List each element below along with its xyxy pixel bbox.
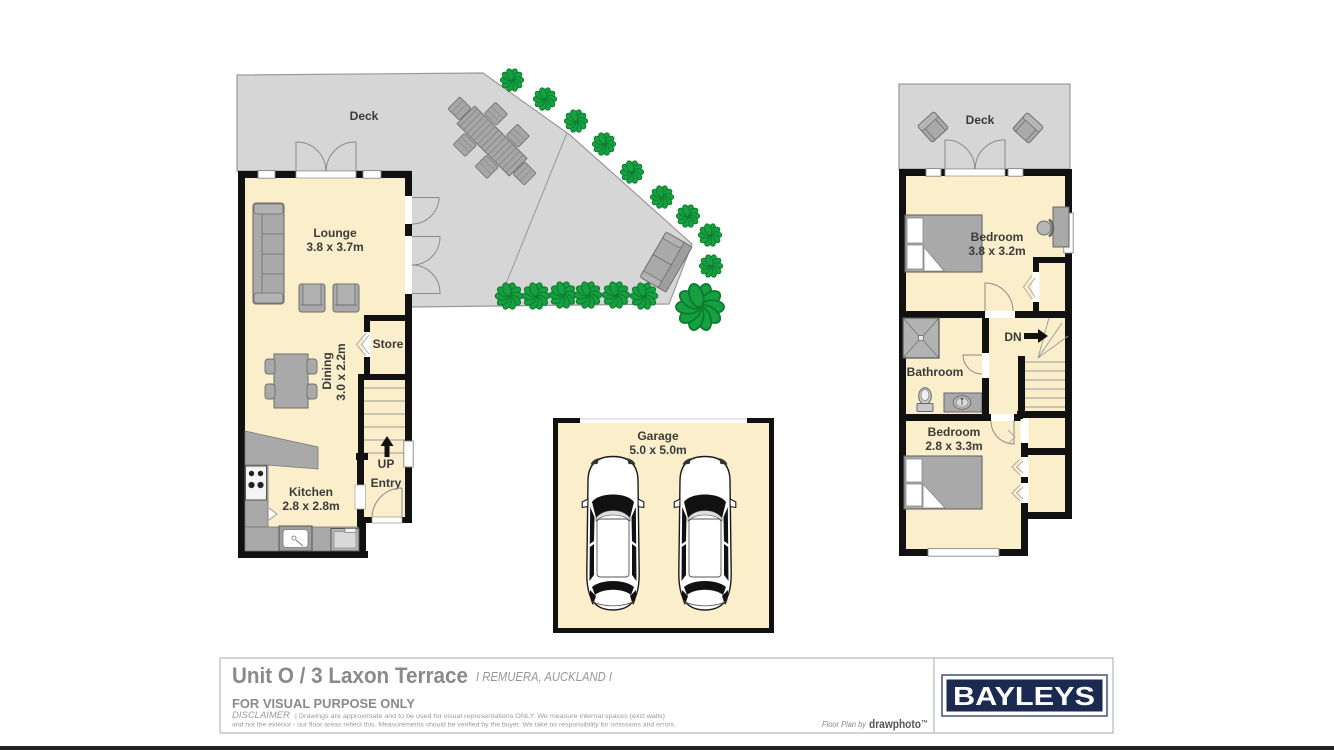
svg-text:DN: DN	[1004, 330, 1021, 344]
svg-text:3.8 x 3.2m: 3.8 x 3.2m	[968, 244, 1025, 258]
svg-text:5.0 x 5.0m: 5.0 x 5.0m	[629, 443, 686, 457]
svg-text:UP: UP	[378, 457, 395, 471]
svg-text:2.8 x 2.8m: 2.8 x 2.8m	[282, 499, 339, 513]
svg-text:| Drawings are approximate and: | Drawings are approximate and to be use…	[295, 713, 665, 720]
svg-text:Bedroom: Bedroom	[928, 425, 981, 439]
svg-text:Store: Store	[373, 337, 404, 351]
svg-text:BAYLEYS: BAYLEYS	[953, 681, 1095, 711]
svg-text:Deck: Deck	[350, 109, 379, 123]
svg-text:3.8 x 3.7m: 3.8 x 3.7m	[306, 240, 363, 254]
svg-text:Unit O / 3 Laxon Terrace: Unit O / 3 Laxon Terrace	[232, 663, 468, 688]
svg-text:Bathroom: Bathroom	[907, 365, 964, 379]
svg-text:Bedroom: Bedroom	[971, 230, 1024, 244]
svg-text:I REMUERA, AUCKLAND I: I REMUERA, AUCKLAND I	[476, 669, 612, 684]
svg-text:Deck: Deck	[966, 113, 995, 127]
svg-text:drawphoto™: drawphoto™	[869, 719, 928, 731]
svg-text:Kitchen: Kitchen	[289, 485, 333, 499]
svg-text:FOR VISUAL PURPOSE ONLY: FOR VISUAL PURPOSE ONLY	[232, 697, 416, 711]
svg-text:DISCLAIMER: DISCLAIMER	[232, 710, 290, 721]
svg-text:Floor Plan by: Floor Plan by	[822, 720, 867, 729]
svg-text:3.0 x 2.2m: 3.0 x 2.2m	[334, 343, 348, 400]
svg-text:2.8 x 3.3m: 2.8 x 3.3m	[925, 439, 982, 453]
svg-text:Lounge: Lounge	[313, 226, 357, 240]
svg-text:Dining: Dining	[320, 352, 334, 389]
svg-text:Garage: Garage	[637, 429, 679, 443]
svg-text:and not the exterior - our flo: and not the exterior - our floor areas r…	[232, 722, 676, 729]
